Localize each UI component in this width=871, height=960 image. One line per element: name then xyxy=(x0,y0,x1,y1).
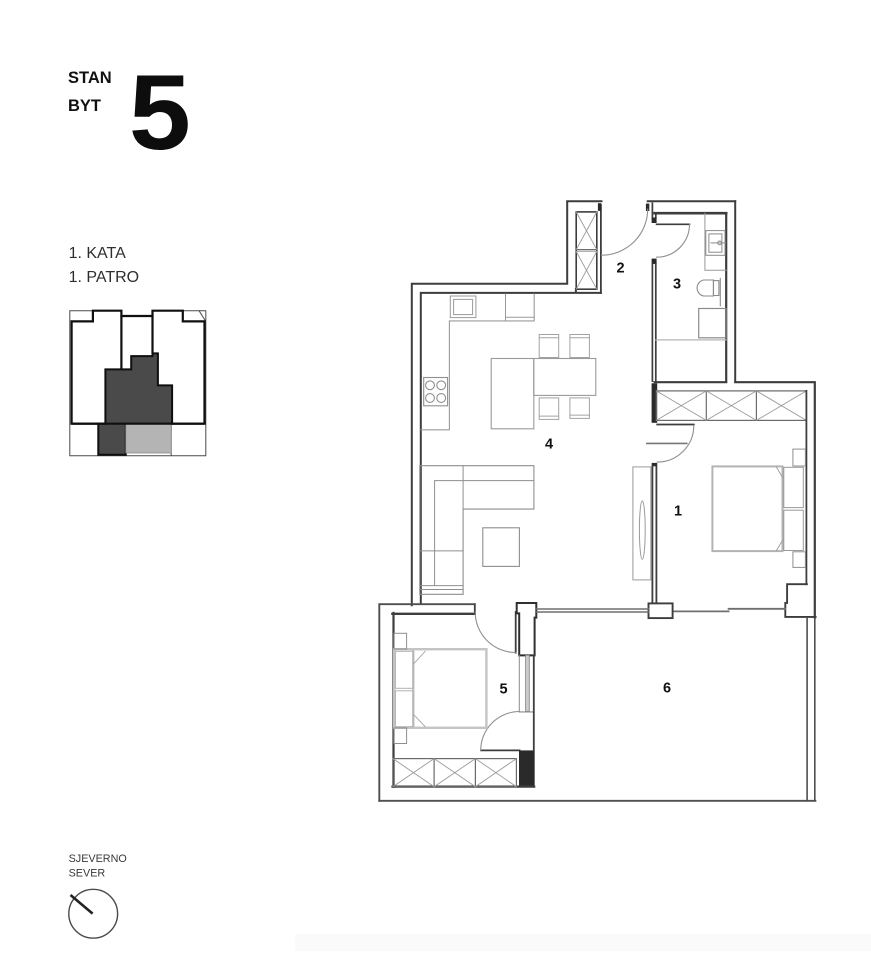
svg-text:1. PATRO: 1. PATRO xyxy=(69,269,140,286)
svg-text:5: 5 xyxy=(499,682,507,698)
svg-text:BYT: BYT xyxy=(68,97,101,115)
svg-text:STAN: STAN xyxy=(68,69,112,87)
svg-text:SJEVERNO: SJEVERNO xyxy=(69,853,127,865)
svg-text:2: 2 xyxy=(616,261,624,277)
svg-text:3: 3 xyxy=(673,277,681,293)
svg-text:4: 4 xyxy=(545,437,553,453)
svg-text:1. KATA: 1. KATA xyxy=(69,245,127,262)
svg-text:1: 1 xyxy=(674,504,682,520)
svg-text:SEVER: SEVER xyxy=(69,868,106,880)
svg-text:5: 5 xyxy=(129,52,191,172)
svg-text:6: 6 xyxy=(663,681,671,697)
